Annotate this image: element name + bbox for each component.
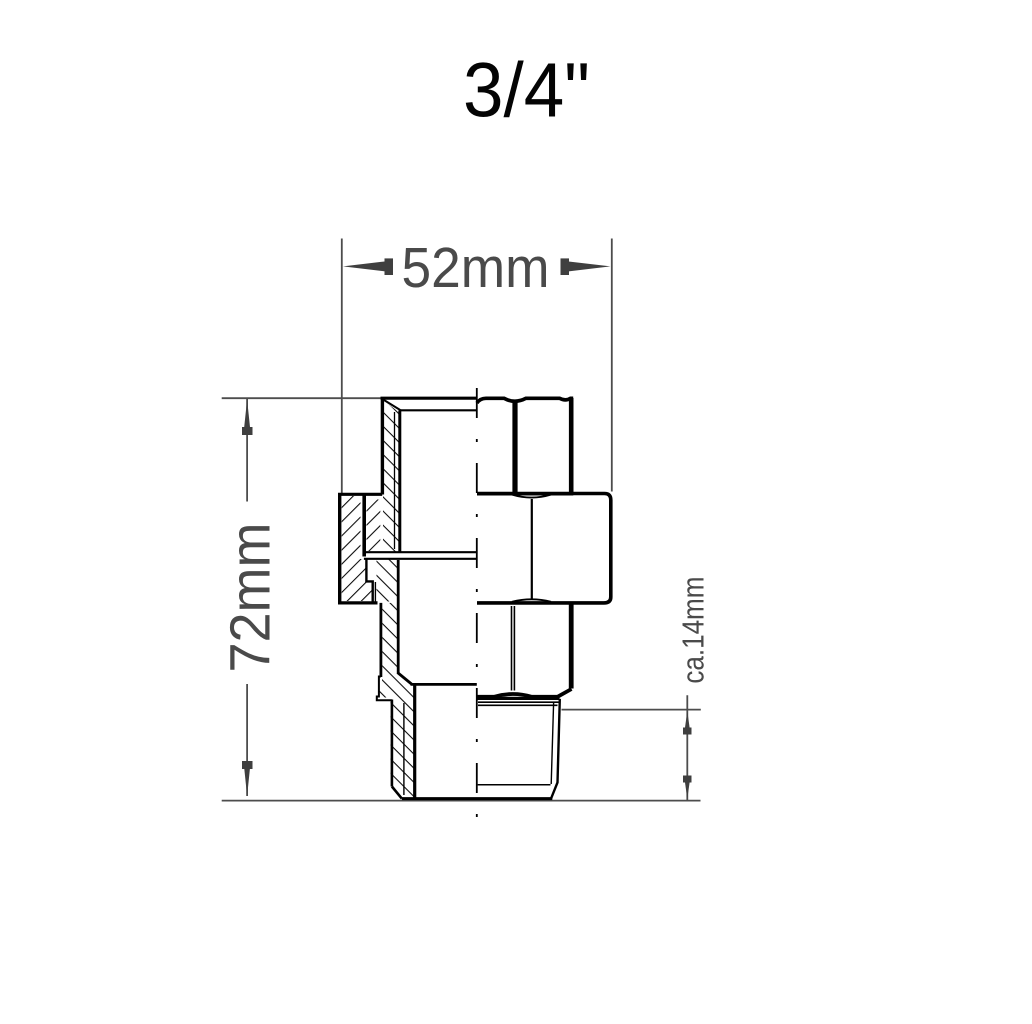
svg-text:3/4": 3/4" <box>463 48 590 134</box>
svg-text:ca.14mm: ca.14mm <box>676 577 711 684</box>
svg-text:72mm: 72mm <box>219 523 283 673</box>
svg-text:52mm: 52mm <box>402 236 550 300</box>
